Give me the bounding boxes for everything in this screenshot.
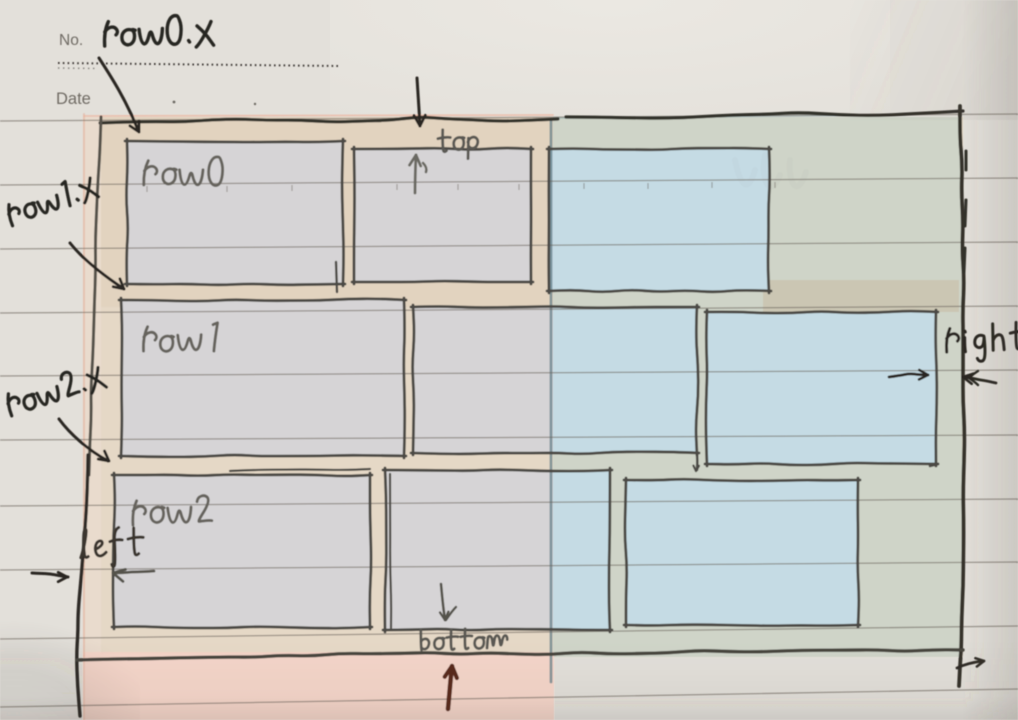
- svg-text:Date: Date: [56, 90, 91, 108]
- svg-text:No.: No.: [59, 32, 83, 49]
